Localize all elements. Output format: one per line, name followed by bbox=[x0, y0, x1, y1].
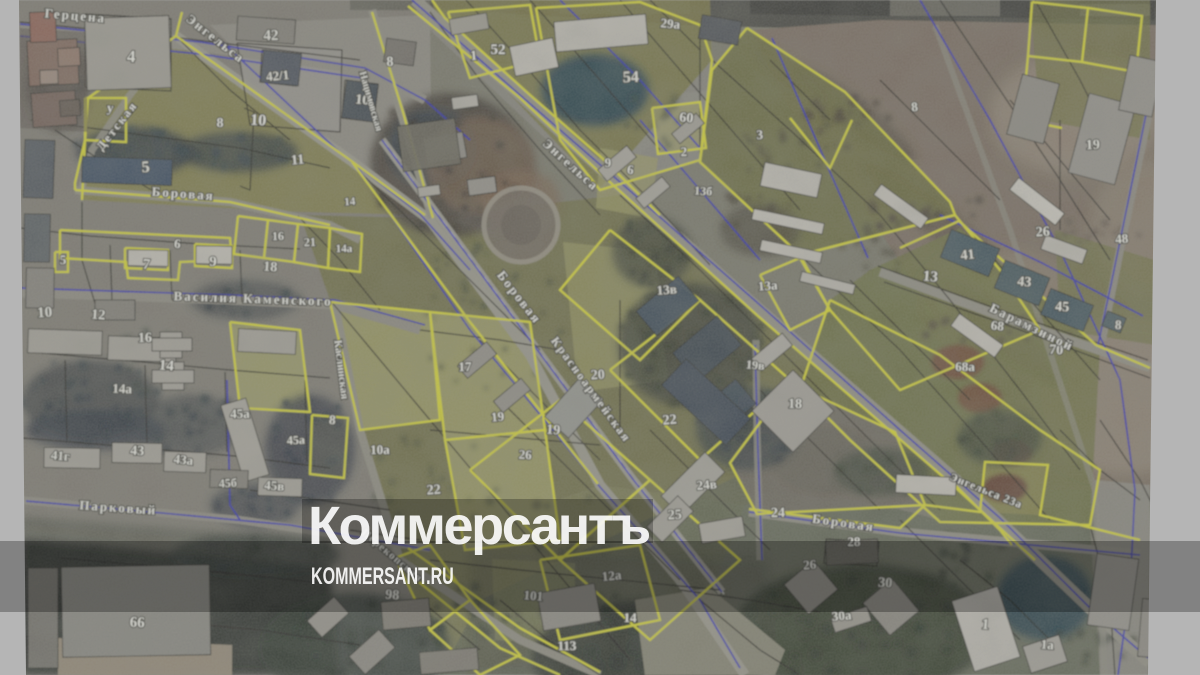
svg-text:Коммерсантъ: Коммерсантъ bbox=[308, 496, 650, 556]
svg-text:KOMMERSANT.RU: KOMMERSANT.RU bbox=[311, 564, 454, 590]
